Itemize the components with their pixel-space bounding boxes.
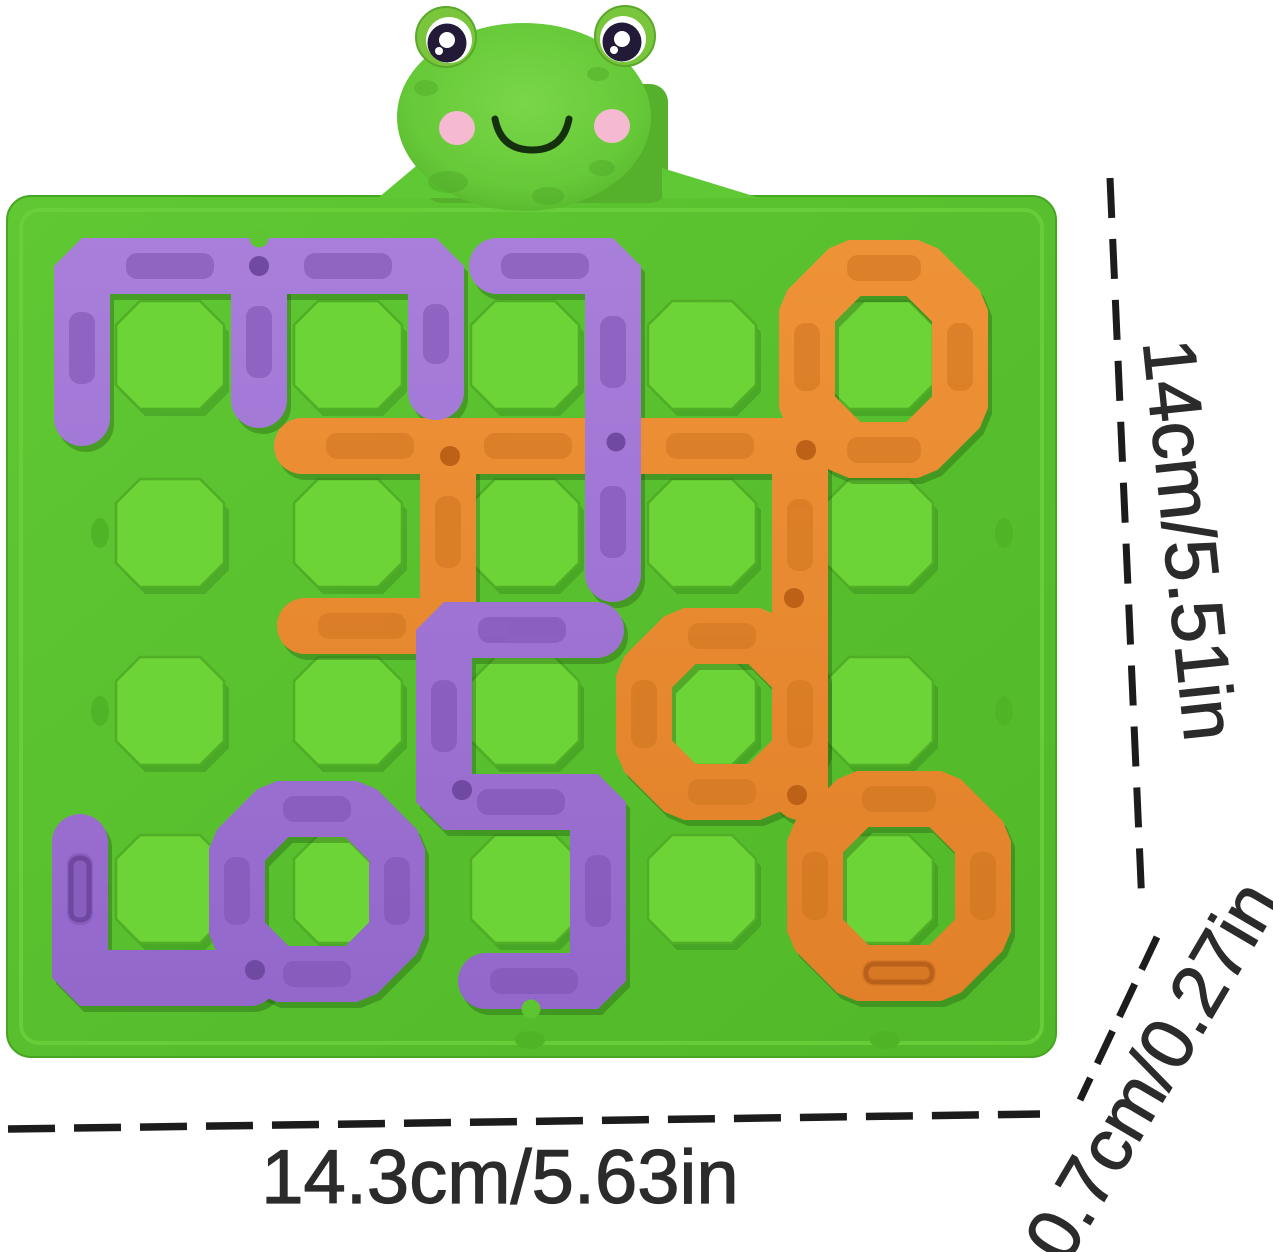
svg-text:14.3cm/5.63in: 14.3cm/5.63in bbox=[261, 1135, 738, 1220]
